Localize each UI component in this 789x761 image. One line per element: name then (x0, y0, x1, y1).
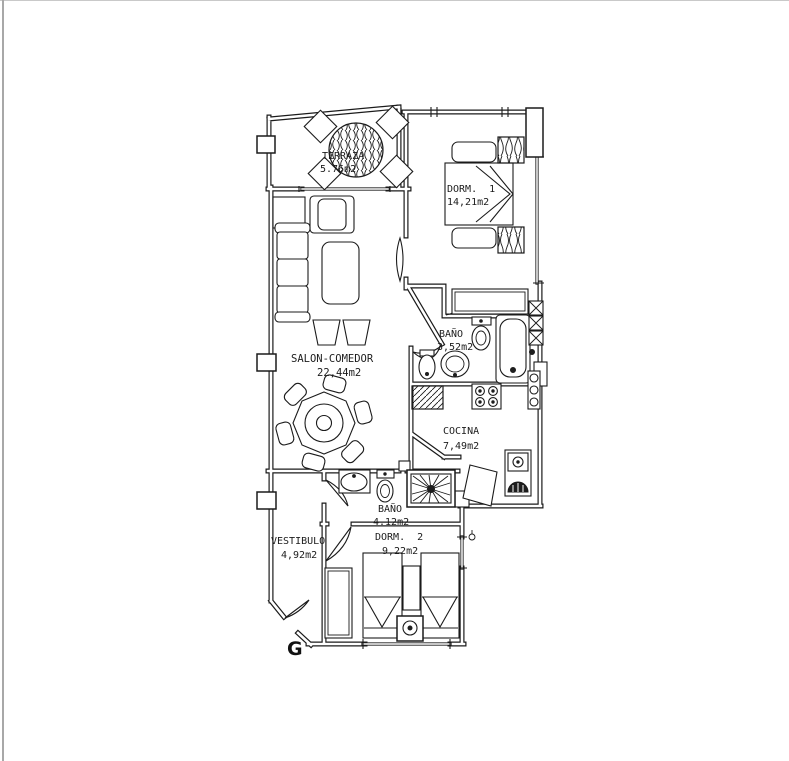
armchair-cushion (318, 199, 346, 230)
salon-furniture (273, 196, 373, 472)
terrace-furniture (304, 106, 413, 190)
nightstand (498, 227, 524, 253)
room-label-vestibulo: VESTIBULO (271, 536, 325, 547)
pillar-salon (257, 354, 276, 371)
door-leaf-entrance (285, 600, 309, 618)
door-leaf-cocina (463, 465, 497, 506)
room-label-cocina: COCINA (443, 426, 479, 437)
toilet-bowl (472, 326, 490, 350)
shower-drain (428, 486, 435, 493)
single-bed (421, 553, 459, 638)
dorm1-furniture (445, 137, 524, 253)
room-area-dorm1: 14,21m2 (447, 197, 489, 208)
bench (452, 228, 496, 248)
room-area-vestibulo: 4,92m2 (281, 550, 317, 561)
pillar-terrace (257, 136, 275, 153)
door-leaf-dorm1 (397, 238, 404, 281)
pouf-chair (343, 320, 370, 345)
nightstand (498, 137, 524, 163)
room-area-cocina: 7,49m2 (443, 441, 479, 452)
coffee-table (322, 242, 359, 304)
room-label-terraza: TERRAZA (322, 151, 364, 162)
room-area-dorm2: 9,22m2 (382, 546, 418, 557)
wardrobe (452, 289, 528, 314)
sofa-armrest (275, 312, 310, 322)
room-area-terraza: 5.76m2 (320, 164, 356, 175)
wardrobe (325, 568, 352, 638)
room-label-bano1: BAÑO (439, 327, 463, 340)
page: TERRAZA 5.76m2 DORM. 1 14,21m2 SALON-COM… (0, 0, 789, 761)
room-area-bano1: 3,52m2 (437, 342, 473, 353)
dorm2-furniture (325, 553, 459, 641)
room-label-bano2: BAÑO (378, 502, 402, 515)
nightstand (403, 566, 420, 610)
room-label-salon: SALON-COMEDOR (291, 353, 374, 365)
door-handle-mark (469, 534, 475, 540)
wall-block-top-right (526, 108, 543, 157)
dining-table (293, 392, 355, 454)
toilet-bowl (377, 480, 393, 502)
pillar-vestibulo (257, 492, 276, 509)
sofa-cushion (277, 232, 308, 259)
bench (452, 142, 496, 162)
door-leaf-dorm2 (326, 527, 351, 561)
kitchen-counter (412, 386, 443, 409)
sofa-cushion (277, 259, 308, 286)
pouf-chair (313, 320, 340, 345)
entrance-label: G (287, 638, 303, 660)
room-area-salon: 22,44m2 (317, 367, 361, 379)
floor-plan-drawing: TERRAZA 5.76m2 DORM. 1 14,21m2 SALON-COM… (0, 0, 789, 761)
room-label-dorm2: DORM. 2 (375, 532, 423, 543)
room-label-dorm1: DORM. 1 (447, 184, 495, 195)
room-area-bano2: 4.12m2 (373, 517, 409, 528)
bathtub-drain (511, 368, 516, 373)
bano2-fixtures (339, 470, 455, 507)
sofa-cushion (277, 286, 308, 313)
